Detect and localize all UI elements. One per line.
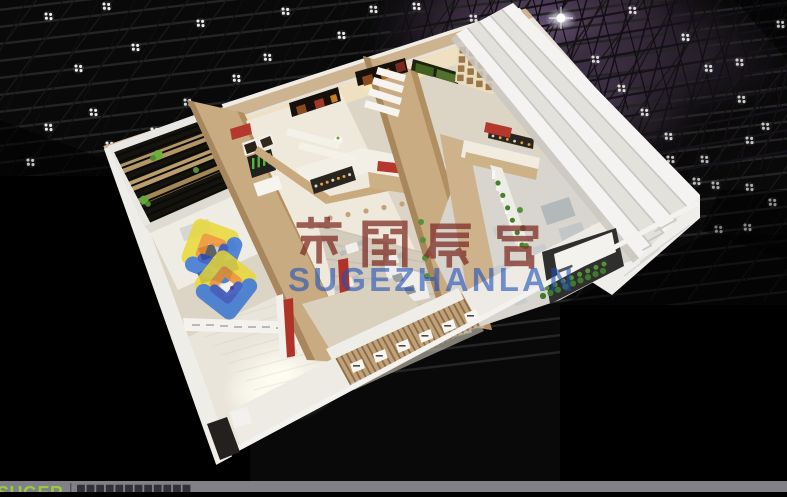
svg-text:SUGER: SUGER [0,483,64,492]
svg-text:SUGEZHANLAN: SUGEZHANLAN [288,261,576,298]
